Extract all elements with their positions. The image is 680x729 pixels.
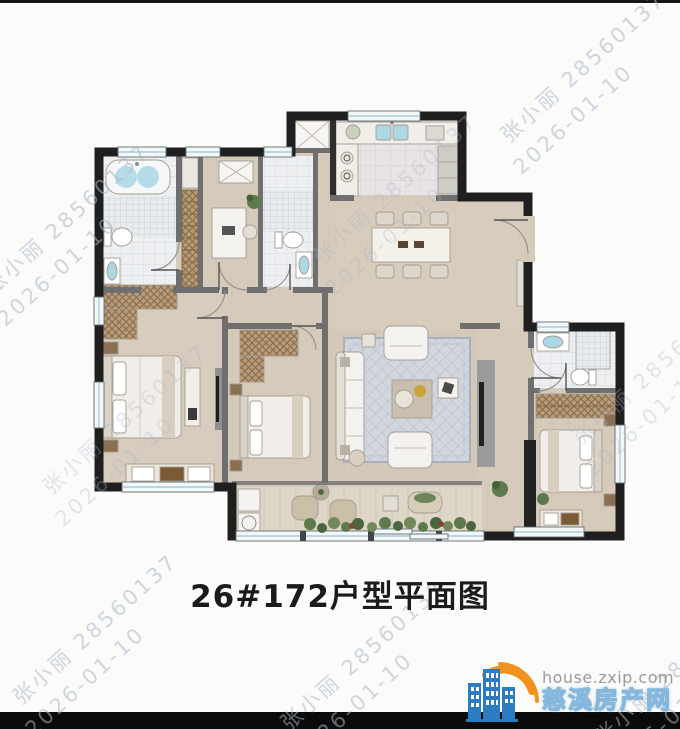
window-seat [126,464,214,484]
nightstand [103,342,118,354]
lounge-chair [292,496,318,520]
armchair [384,326,428,360]
dining-chair [430,265,448,278]
window [348,111,420,121]
basket [346,125,360,139]
window [264,147,292,157]
laundry-cabinet [238,489,260,533]
small-table [383,496,398,511]
floorplan-title: 26#172户型平面图 [0,571,680,616]
ensuite-shower [576,331,610,369]
bay-window [514,527,584,537]
site-logo: house.zxip.com 慈溪房产网 [466,657,674,723]
tv [479,382,484,446]
nightstand [604,494,617,506]
sink [104,258,120,284]
window [186,147,220,157]
buildings [466,669,518,722]
bed [240,396,310,458]
dining-chair [403,212,421,225]
armchair [388,432,432,468]
coffee-table [392,380,432,418]
window-seat [540,510,582,528]
wardrobe [103,309,137,339]
utility-cabinet [295,121,329,150]
screenshot-root: 张小丽 28560137 2026-01-10 张小丽 28560137 202… [0,0,680,729]
wardrobe [240,330,298,356]
dining-area [372,212,450,278]
toilet [571,369,596,385]
city-buildings-icon [466,657,540,723]
bathroom2-shower [263,190,313,230]
wardrobe [240,356,264,382]
floor-plan [0,0,680,729]
end-table [362,334,375,347]
hall-closet [182,158,198,287]
nightstand [230,460,242,471]
dining-chair [376,212,394,225]
fridge [438,146,458,194]
toilet [275,232,303,248]
tv-wall [477,360,495,467]
window [94,382,104,428]
window [94,297,104,325]
dining-chair [403,265,421,278]
dining-chair [430,212,448,225]
sofa [336,352,364,460]
tv-cabinet [215,368,223,430]
logo-text: house.zxip.com 慈溪房产网 [542,669,674,714]
dining-table [372,228,450,262]
site-url: house.zxip.com [542,669,674,687]
nightstand [103,440,118,452]
small-appliance [426,126,444,140]
bed [103,356,181,438]
sink [296,252,312,278]
pouf [349,450,365,466]
toilet [104,228,132,246]
site-name: 慈溪房产网 [542,687,674,713]
dining-chair [376,265,394,278]
desk-chair [243,225,257,239]
bedroom-2 [230,330,310,471]
nightstand [604,414,617,426]
window [118,147,166,157]
window [537,322,569,332]
bay-window [122,482,214,492]
window [615,425,625,483]
nightstand [230,384,242,395]
bed [540,430,602,492]
